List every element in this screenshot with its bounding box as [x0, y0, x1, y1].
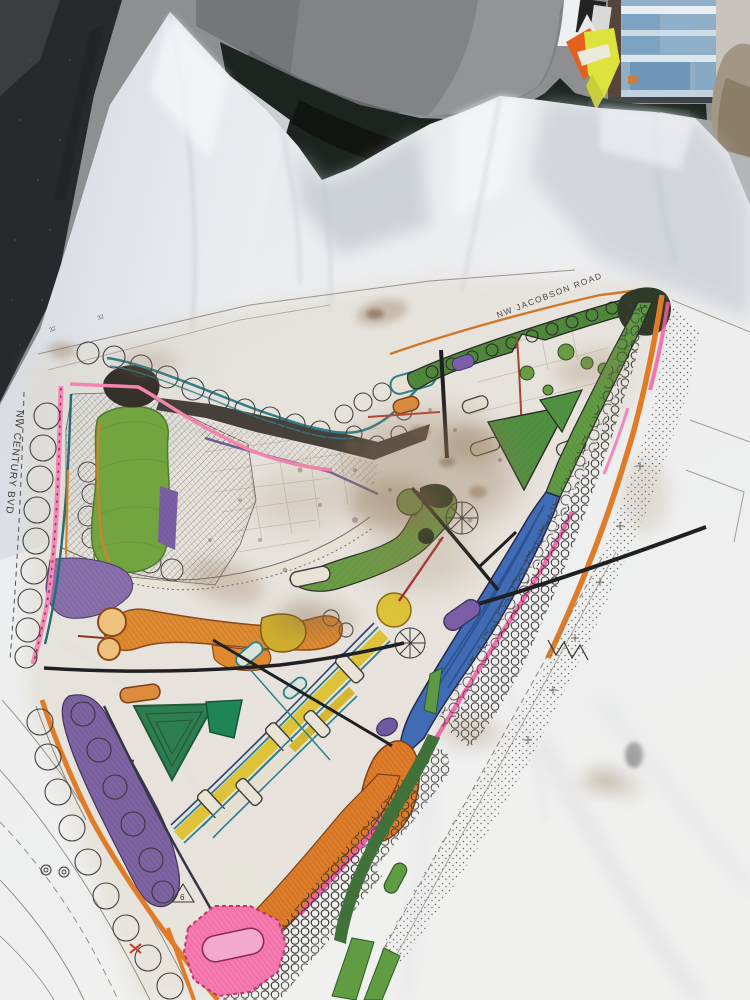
svg-text:6: 6	[180, 893, 185, 902]
